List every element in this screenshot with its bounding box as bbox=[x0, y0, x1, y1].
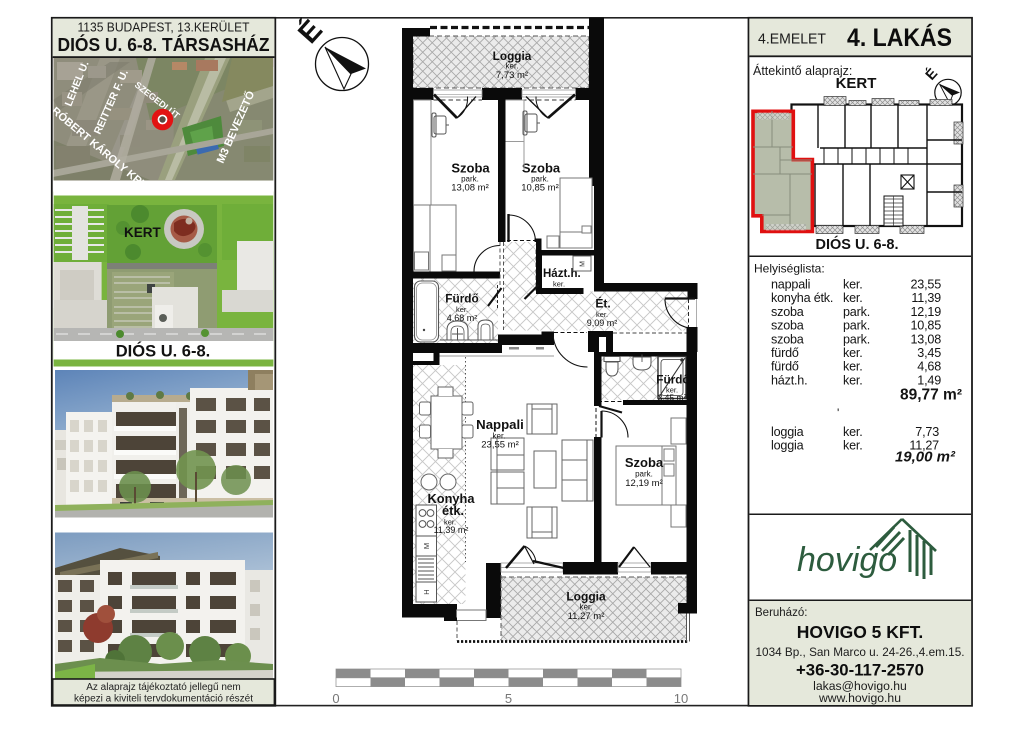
svg-text:KERT: KERT bbox=[836, 75, 877, 92]
svg-text:12,19: 12,19 bbox=[910, 305, 941, 319]
svg-text:ker.: ker. bbox=[843, 425, 863, 439]
svg-text:Ét.: Ét. bbox=[595, 296, 610, 311]
svg-text:loggia: loggia bbox=[771, 425, 804, 439]
svg-text:10,85 m²: 10,85 m² bbox=[521, 183, 559, 194]
svg-text:11,39 m²: 11,39 m² bbox=[434, 525, 469, 535]
svg-text:DIÓS U. 6-8.: DIÓS U. 6-8. bbox=[116, 342, 210, 361]
svg-text:4.EMELET: 4.EMELET bbox=[758, 32, 826, 48]
svg-text:fürdő: fürdő bbox=[771, 346, 799, 360]
svg-text:ker.: ker. bbox=[843, 360, 863, 374]
svg-text:ker.: ker. bbox=[843, 346, 863, 360]
svg-text:hovigo: hovigo bbox=[797, 541, 897, 579]
svg-text:HOVIGO 5 KFT.: HOVIGO 5 KFT. bbox=[797, 622, 923, 642]
svg-text:szoba: szoba bbox=[771, 332, 804, 346]
svg-text:+36-30-117-2570: +36-30-117-2570 bbox=[796, 661, 924, 680]
svg-text:ker.: ker. bbox=[843, 278, 863, 292]
svg-text:Szoba: Szoba bbox=[522, 161, 561, 176]
svg-text:konyha étk.: konyha étk. bbox=[771, 291, 833, 305]
svg-text:étk.: étk. bbox=[442, 503, 464, 518]
svg-text:M: M bbox=[422, 543, 431, 549]
svg-text:Loggia: Loggia bbox=[566, 590, 606, 604]
svg-text:Helyiséglista:: Helyiséglista: bbox=[754, 262, 825, 276]
svg-text:loggia: loggia bbox=[771, 439, 804, 453]
svg-text:1,49: 1,49 bbox=[917, 373, 941, 387]
svg-text:DIÓS U. 6-8. TÁRSASHÁZ: DIÓS U. 6-8. TÁRSASHÁZ bbox=[58, 34, 270, 55]
svg-text:fürdő: fürdő bbox=[771, 360, 799, 374]
svg-text:nappali: nappali bbox=[771, 278, 810, 292]
svg-text:park.: park. bbox=[843, 332, 870, 346]
svg-text:13,08: 13,08 bbox=[910, 332, 941, 346]
svg-text:12,19 m²: 12,19 m² bbox=[625, 478, 663, 489]
svg-text:Szoba: Szoba bbox=[451, 161, 490, 176]
svg-text:DIÓS U. 6-8.: DIÓS U. 6-8. bbox=[816, 235, 899, 253]
svg-text:ker.: ker. bbox=[843, 291, 863, 305]
svg-text:ker.: ker. bbox=[553, 280, 565, 289]
svg-text:Fürdő: Fürdő bbox=[656, 373, 689, 387]
svg-text:KERT: KERT bbox=[124, 225, 162, 240]
svg-text:házt.h.: házt.h. bbox=[771, 373, 807, 387]
svg-text:Az alaprajz tájékoztató jelleg: Az alaprajz tájékoztató jellegű nem bbox=[86, 682, 241, 693]
svg-text:H: H bbox=[422, 589, 431, 594]
svg-text:szoba: szoba bbox=[771, 305, 804, 319]
svg-text:1034 Bp., San Marco u. 24-26.,: 1034 Bp., San Marco u. 24-26.,4.em.15. bbox=[756, 645, 965, 659]
svg-text:0: 0 bbox=[332, 691, 339, 706]
svg-text:9,09 m²: 9,09 m² bbox=[587, 318, 618, 328]
svg-text:': ' bbox=[837, 406, 839, 420]
svg-text:4,68: 4,68 bbox=[917, 360, 941, 374]
svg-text:10,85: 10,85 bbox=[910, 319, 941, 333]
svg-text:Nappali: Nappali bbox=[476, 417, 524, 432]
svg-text:ker.: ker. bbox=[843, 373, 863, 387]
svg-text:park.: park. bbox=[843, 305, 870, 319]
svg-text:7,73 m²: 7,73 m² bbox=[496, 70, 528, 81]
svg-text:képezi a kiviteli tervdokument: képezi a kiviteli tervdokumentáció részé… bbox=[74, 694, 253, 705]
svg-text:Beruházó:: Beruházó: bbox=[755, 607, 807, 619]
svg-text:www.hovigo.hu: www.hovigo.hu bbox=[818, 691, 901, 705]
svg-text:3,45: 3,45 bbox=[917, 346, 941, 360]
svg-text:23,55 m²: 23,55 m² bbox=[481, 440, 519, 451]
svg-text:5: 5 bbox=[505, 691, 512, 706]
svg-text:19,00 m²: 19,00 m² bbox=[895, 449, 956, 466]
svg-text:M: M bbox=[580, 261, 587, 267]
svg-text:13,08 m²: 13,08 m² bbox=[451, 183, 489, 194]
svg-text:7,73: 7,73 bbox=[915, 425, 939, 439]
svg-text:1135 BUDAPEST, 13.KERÜLET: 1135 BUDAPEST, 13.KERÜLET bbox=[78, 20, 250, 35]
svg-text:23,55: 23,55 bbox=[910, 278, 941, 292]
svg-text:89,77 m²: 89,77 m² bbox=[900, 387, 962, 404]
svg-text:11,39: 11,39 bbox=[911, 291, 941, 305]
svg-text:park.: park. bbox=[843, 319, 870, 333]
svg-text:szoba: szoba bbox=[771, 319, 804, 333]
svg-text:4. LAKÁS: 4. LAKÁS bbox=[847, 23, 952, 52]
svg-text:11,27 m²: 11,27 m² bbox=[568, 611, 605, 622]
svg-text:10: 10 bbox=[674, 691, 688, 706]
svg-text:Fürdő: Fürdő bbox=[445, 292, 478, 306]
svg-text:Szoba: Szoba bbox=[625, 455, 664, 470]
svg-text:ker.: ker. bbox=[843, 439, 863, 453]
